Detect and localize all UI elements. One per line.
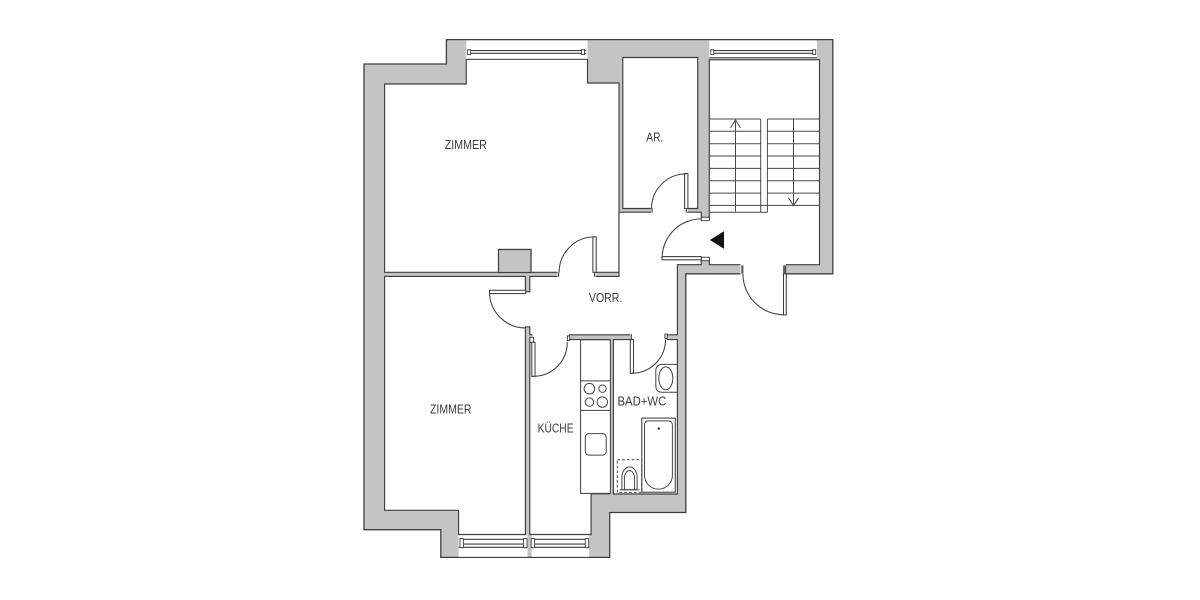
svg-text:AR.: AR. [646,130,663,145]
svg-text:BAD+WC: BAD+WC [618,394,667,409]
svg-text:VORR.: VORR. [589,290,623,305]
svg-text:ZIMMER: ZIMMER [445,137,487,152]
svg-text:ZIMMER: ZIMMER [430,401,472,416]
svg-text:KÜCHE: KÜCHE [538,420,574,435]
